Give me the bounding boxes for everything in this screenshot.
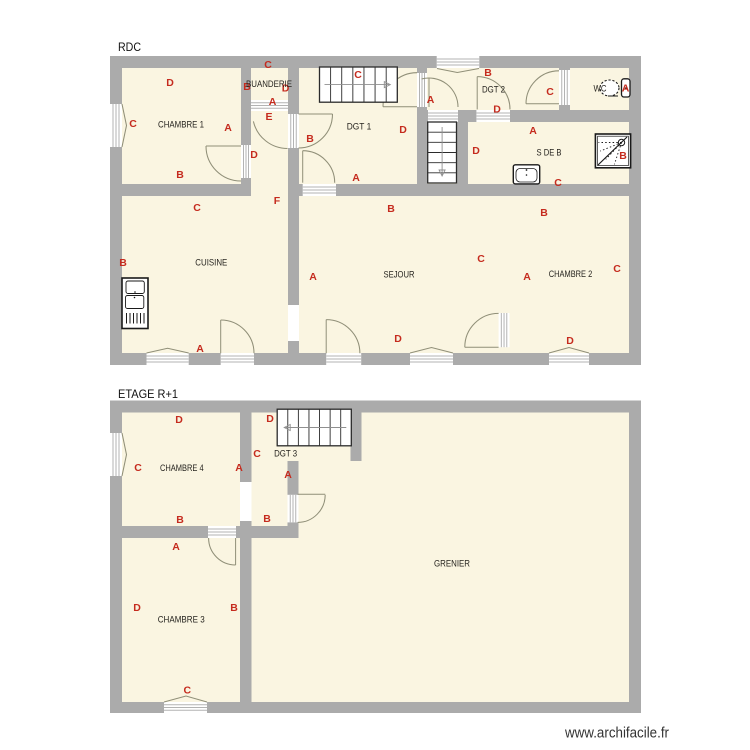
svg-text:C: C xyxy=(253,448,261,460)
svg-text:A: A xyxy=(529,125,537,137)
svg-text:DGT 3: DGT 3 xyxy=(274,449,297,460)
svg-text:D: D xyxy=(175,414,183,426)
svg-text:RDC: RDC xyxy=(118,40,141,54)
svg-text:A: A xyxy=(269,96,277,108)
svg-text:CHAMBRE 3: CHAMBRE 3 xyxy=(158,614,205,625)
svg-text:B: B xyxy=(540,207,548,219)
svg-text:C: C xyxy=(354,69,362,81)
svg-text:E: E xyxy=(265,111,272,123)
svg-text:ETAGE R+1: ETAGE R+1 xyxy=(118,387,178,401)
svg-text:A: A xyxy=(284,469,292,481)
svg-text:D: D xyxy=(493,104,501,116)
svg-text:F: F xyxy=(274,195,281,207)
svg-text:A: A xyxy=(224,122,232,134)
svg-text:D: D xyxy=(399,124,407,136)
svg-text:GRENIER: GRENIER xyxy=(434,559,470,570)
svg-text:A: A xyxy=(172,541,180,553)
svg-text:C: C xyxy=(477,253,485,265)
svg-text:CHAMBRE 1: CHAMBRE 1 xyxy=(158,120,204,131)
svg-text:DGT 2: DGT 2 xyxy=(482,84,505,95)
svg-text:DGT 1: DGT 1 xyxy=(347,122,372,133)
svg-text:B: B xyxy=(230,602,238,614)
svg-text:B: B xyxy=(619,150,627,162)
svg-text:S DE B: S DE B xyxy=(537,147,562,158)
svg-text:B: B xyxy=(306,133,314,145)
svg-text:D: D xyxy=(566,335,574,347)
svg-text:A: A xyxy=(352,172,360,184)
svg-text:CUISINE: CUISINE xyxy=(195,258,227,269)
svg-text:B: B xyxy=(176,169,184,181)
svg-text:D: D xyxy=(472,145,480,157)
svg-text:C: C xyxy=(193,202,201,214)
svg-text:A: A xyxy=(309,271,317,283)
svg-text:B: B xyxy=(263,513,271,525)
svg-text:D: D xyxy=(166,77,174,89)
svg-text:BUANDERIE: BUANDERIE xyxy=(246,79,292,90)
svg-text:A: A xyxy=(622,83,630,95)
svg-text:C: C xyxy=(264,59,272,71)
svg-text:B: B xyxy=(484,67,492,79)
svg-text:www.archifacile.fr: www.archifacile.fr xyxy=(564,725,669,742)
svg-text:D: D xyxy=(394,333,402,345)
svg-text:A: A xyxy=(196,343,204,355)
svg-text:D: D xyxy=(266,413,274,425)
svg-text:A: A xyxy=(427,94,435,106)
svg-text:B: B xyxy=(119,257,127,269)
svg-text:WC: WC xyxy=(594,84,607,95)
svg-text:C: C xyxy=(184,685,192,697)
svg-text:B: B xyxy=(387,203,395,215)
svg-text:CHAMBRE 4: CHAMBRE 4 xyxy=(160,463,204,474)
svg-text:C: C xyxy=(546,86,554,98)
svg-text:B: B xyxy=(176,514,184,526)
svg-text:A: A xyxy=(523,271,531,283)
svg-text:SEJOUR: SEJOUR xyxy=(384,269,415,280)
svg-text:A: A xyxy=(235,462,243,474)
svg-text:C: C xyxy=(129,118,137,130)
svg-text:C: C xyxy=(554,177,562,189)
svg-text:C: C xyxy=(613,263,621,275)
svg-text:D: D xyxy=(133,602,141,614)
svg-text:D: D xyxy=(250,149,258,161)
svg-text:C: C xyxy=(134,462,142,474)
svg-text:CHAMBRE 2: CHAMBRE 2 xyxy=(549,269,593,280)
